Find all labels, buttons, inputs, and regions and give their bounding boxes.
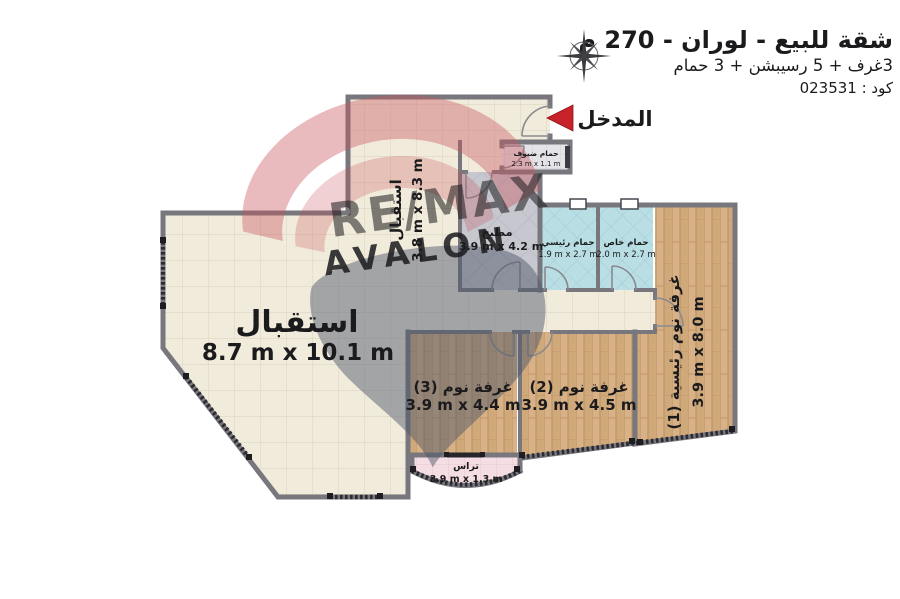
room-label-kitchen: مطبخ	[481, 225, 512, 239]
room-label-hall: استقبال	[387, 179, 405, 241]
room-label-bedroom-2: غرفة نوم (2)	[529, 378, 628, 396]
page-code: كود : 023531	[800, 79, 894, 97]
room-dims-master-bath: 1.9 m x 2.7 m	[538, 250, 597, 260]
room-dims-bedroom-3: 3.9 m x 4.4 m	[406, 396, 521, 414]
room-label-guest-bath: حمام ضيوف	[513, 149, 558, 158]
bath-vent-2	[621, 199, 638, 209]
room-label-master-bath: حمام رئيسي	[541, 238, 594, 248]
floor-plan-page: RE/MAX AVALON شقة للبيع - لوران - 270 م …	[0, 0, 900, 599]
room-dims-hall: 3.8 m x 8.3 m	[410, 158, 426, 261]
room-dims-guest-bath: 2.3 m x 1.1 m	[512, 160, 561, 168]
room-dims-terrace: 3.9 m x 1.3 m	[430, 474, 503, 485]
room-dims-reception: 8.7 m x 10.1 m	[202, 340, 394, 366]
page-subtitle: 3غرف + 5 رسيبشن + 3 حمام	[674, 56, 893, 76]
room-label-reception: استقبال	[235, 305, 358, 340]
guest-bath-window	[565, 146, 570, 168]
header-block: شقة للبيع - لوران - 270 م 3غرف + 5 رسيبش…	[556, 26, 894, 97]
room-dims-bedroom-2: 3.9 m x 4.5 m	[522, 396, 637, 414]
entrance-arrow-icon	[547, 105, 573, 131]
room-label-master-bedroom: غرفة نوم رئيسية (1)	[665, 274, 683, 429]
entrance-marker: المدخل	[547, 105, 653, 131]
floor-plan-svg: RE/MAX AVALON شقة للبيع - لوران - 270 م …	[0, 0, 900, 599]
entrance-label: المدخل	[577, 107, 652, 131]
room-dims-master-bedroom: 3.9 m x 8.0 m	[691, 296, 707, 407]
room-dims-private-bath: 2.0 m x 2.7 m	[596, 250, 655, 260]
room-label-private-bath: حمام خاص	[604, 238, 649, 248]
page-title: شقة للبيع - لوران - 270 م	[578, 26, 893, 54]
bath-vent-1	[570, 199, 586, 209]
room-dims-kitchen: 3.9 m x 4.2 m	[459, 240, 543, 253]
room-label-bedroom-3: غرفة نوم (3)	[413, 378, 512, 396]
room-label-terrace: تراس	[453, 461, 479, 472]
